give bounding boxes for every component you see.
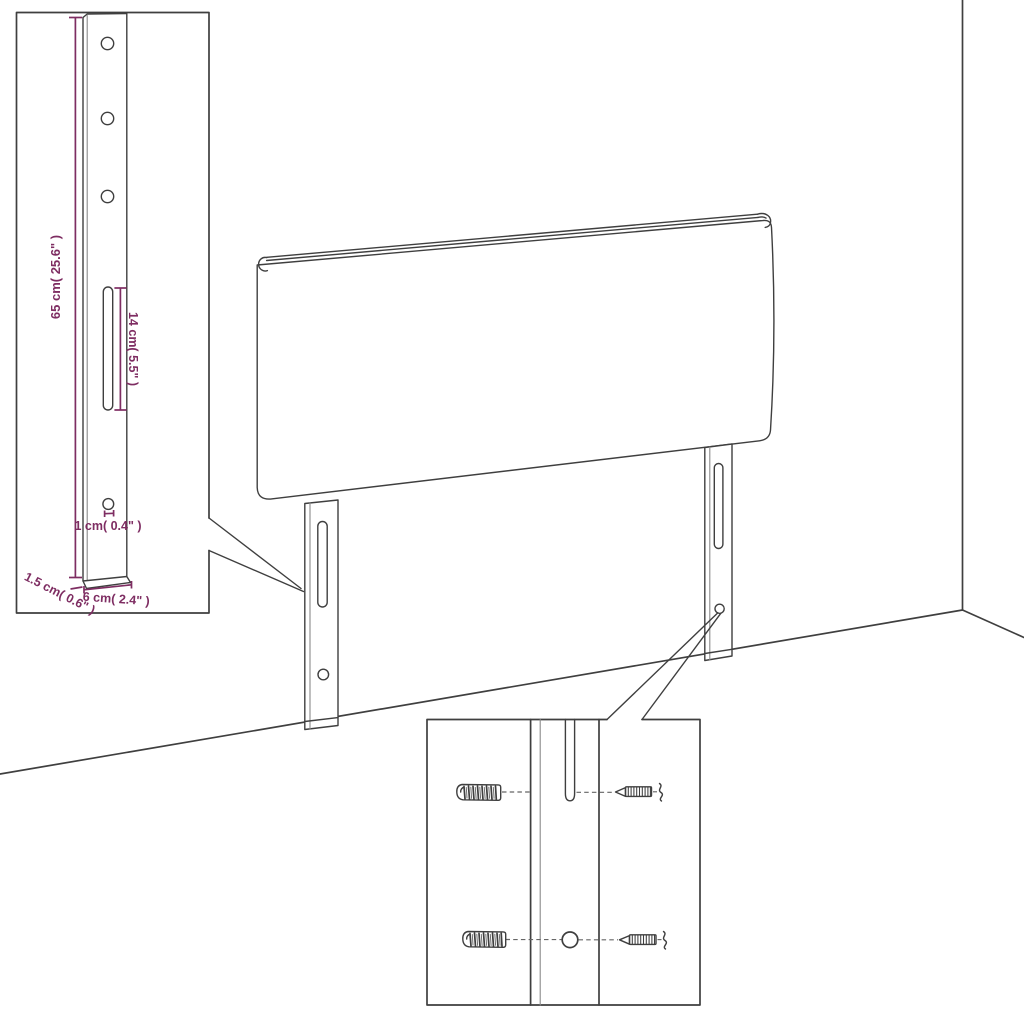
- headboard-right-leg: [705, 444, 732, 661]
- screw-bottom: [620, 932, 667, 950]
- headboard-front-face: [257, 220, 774, 499]
- headboard-dimension-diagram: 65 cm( 25.6" ) 14 cm( 5.5" ) 1 cm( 0.4" …: [0, 0, 1024, 1024]
- floor-line-right: [963, 610, 1024, 638]
- dimension-height: 65 cm( 25.6" ): [48, 18, 82, 578]
- diagram-svg: 65 cm( 25.6" ) 14 cm( 5.5" ) 1 cm( 0.4" …: [0, 0, 1024, 1024]
- wall-plug-bottom-hatching: [470, 933, 502, 947]
- wall-plug-bottom-curl: [467, 935, 469, 940]
- dimension-thickness-tick: [71, 587, 83, 589]
- headboard-roll-right-inner: [758, 217, 766, 218]
- bracket-small-hole: [103, 499, 114, 510]
- callout-line-right: [642, 613, 721, 719]
- screw-top-squiggle: [660, 784, 663, 802]
- wall-plug-top: [457, 785, 501, 801]
- callout-lines-left-inset: [209, 518, 304, 592]
- callout-line-upper: [209, 518, 301, 589]
- strip-hole: [562, 932, 578, 948]
- callout-line-lower: [209, 551, 304, 592]
- mounting-inset-box: [427, 720, 700, 1006]
- bracket-top-edge: [83, 14, 127, 18]
- wall-plug-top-curl: [461, 788, 463, 793]
- bracket-slot: [103, 287, 112, 410]
- dimension-height-label: 65 cm( 25.6" ): [48, 235, 63, 319]
- headboard-left-leg: [305, 500, 338, 730]
- bracket-drawing: [83, 14, 131, 589]
- screw-bottom-squiggle: [664, 932, 667, 950]
- wall-plug-bottom: [463, 932, 506, 948]
- right-leg-body: [705, 444, 732, 661]
- wall-plug-top-hatching: [464, 786, 496, 800]
- strip-slot: [565, 720, 574, 801]
- alignment-dashes: [502, 792, 618, 940]
- mounting-detail-inset: [427, 720, 700, 1006]
- mounting-leg-strip: [531, 720, 599, 1006]
- screw-bottom-threads: [632, 935, 654, 944]
- headboard-panel: [257, 213, 774, 499]
- bracket-hole-2: [101, 112, 113, 124]
- callout-lines-bottom-inset: [607, 613, 721, 720]
- callout-line-left: [607, 613, 718, 720]
- screw-top-threads: [628, 787, 650, 796]
- dimension-hole: 1 cm( 0.4" ): [74, 510, 141, 533]
- bracket-detail-inset: 65 cm( 25.6" ) 14 cm( 5.5" ) 1 cm( 0.4" …: [17, 13, 210, 618]
- floor-line-left: [0, 610, 963, 774]
- screw-top-tip: [616, 788, 626, 797]
- bracket-hole-3: [101, 190, 113, 202]
- dimension-slot-label: 14 cm( 5.5" ): [126, 312, 140, 386]
- dimension-hole-label: 1 cm( 0.4" ): [74, 519, 141, 533]
- screw-bottom-tip: [620, 936, 630, 945]
- bracket-hole-1: [101, 37, 113, 49]
- screw-top: [616, 784, 663, 802]
